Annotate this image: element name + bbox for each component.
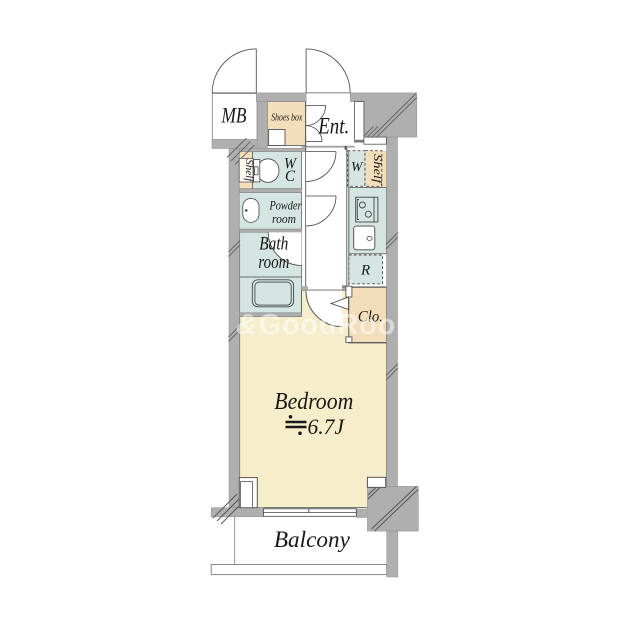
svg-text:&: & [236, 309, 257, 341]
svg-text:Bath: Bath [259, 233, 288, 254]
svg-text:Ent.: Ent. [317, 114, 349, 139]
svg-text:Bedroom: Bedroom [274, 389, 353, 415]
svg-text:W: W [351, 159, 364, 174]
svg-text:C: C [285, 168, 295, 185]
svg-text:R: R [360, 263, 370, 279]
svg-text:Shelf: Shelf [371, 154, 383, 185]
svg-text:Balcony: Balcony [274, 527, 351, 552]
svg-text:GoodRooM: GoodRooM [259, 309, 422, 341]
svg-text:room: room [258, 252, 289, 273]
svg-text:Shoes box: Shoes box [271, 112, 302, 124]
svg-text:Powder: Powder [269, 199, 302, 213]
svg-text:MB: MB [221, 103, 247, 128]
svg-text:6.7J: 6.7J [308, 414, 345, 439]
svg-text:room: room [272, 212, 296, 226]
svg-text:Shelf: Shelf [243, 159, 254, 182]
